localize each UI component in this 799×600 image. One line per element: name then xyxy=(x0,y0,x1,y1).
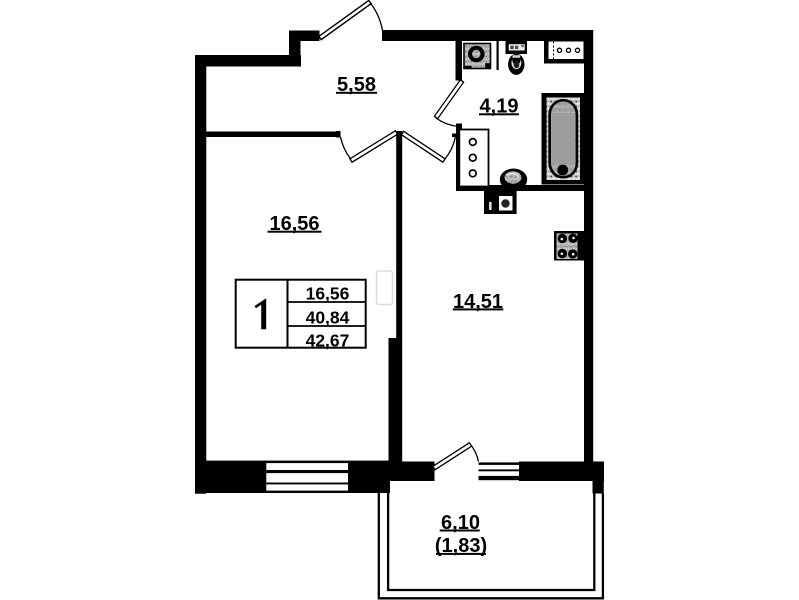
svg-text:42,67: 42,67 xyxy=(306,331,350,351)
svg-text:16,56: 16,56 xyxy=(306,283,350,303)
svg-text:40,84: 40,84 xyxy=(306,307,350,327)
